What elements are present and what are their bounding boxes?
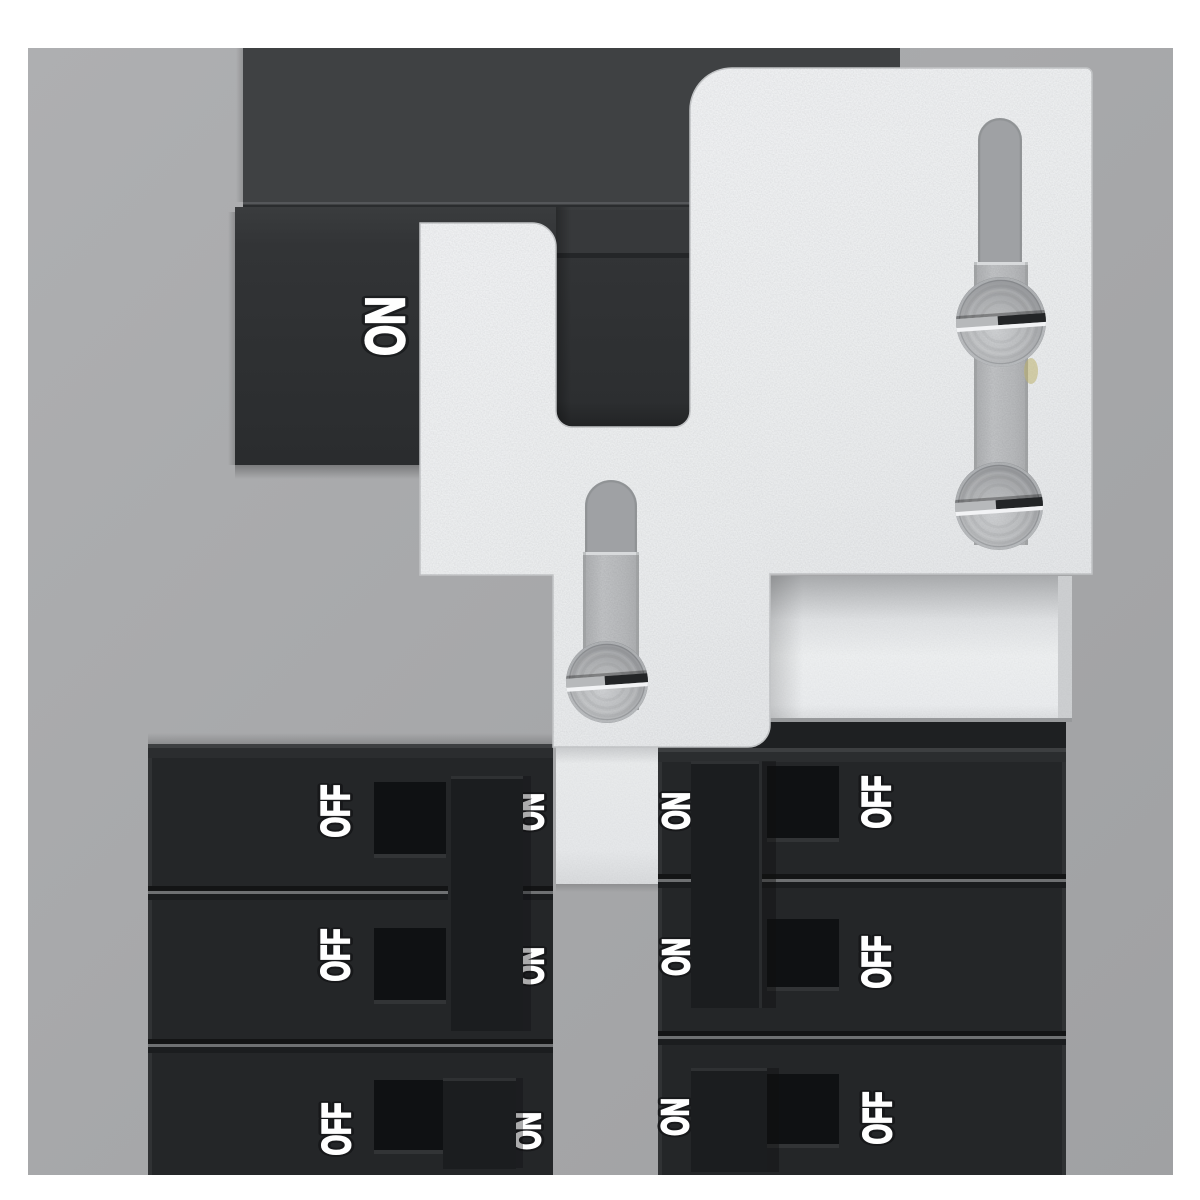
svg-text:OFF: OFF — [314, 929, 358, 982]
svg-text:ON: ON — [655, 1098, 697, 1136]
svg-text:OFF: OFF — [855, 776, 899, 829]
svg-text:ON: ON — [354, 296, 416, 355]
svg-text:OFF: OFF — [315, 1103, 359, 1156]
svg-text:OFF: OFF — [856, 1092, 900, 1145]
svg-text:OFF: OFF — [855, 936, 899, 989]
svg-text:OFF: OFF — [314, 785, 358, 838]
